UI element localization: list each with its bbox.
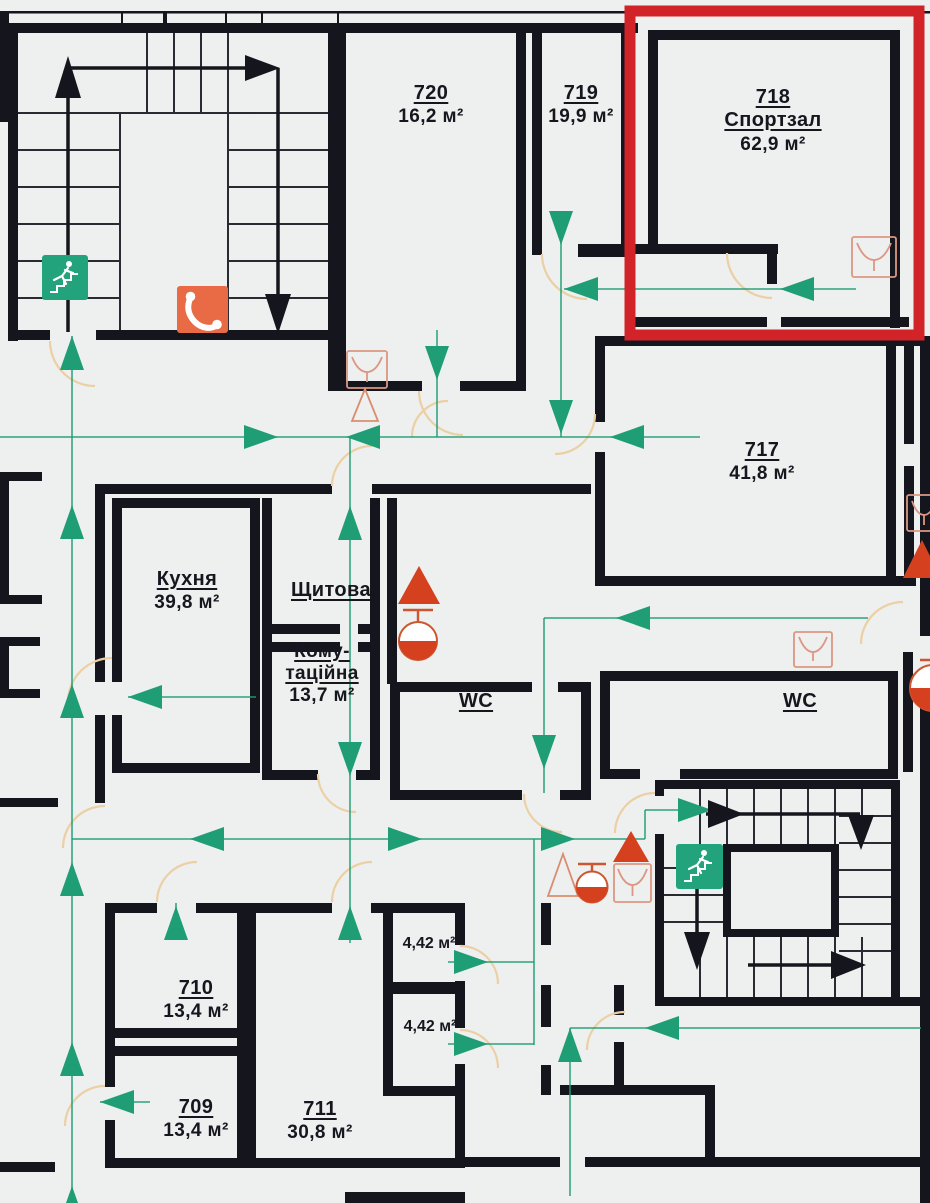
door-leaf-triangle [548, 854, 578, 896]
room-label-710: 710 13,4 м² [163, 977, 228, 1024]
room-label-small-2: 4,42 м² [404, 1018, 457, 1037]
floor-plan-drawing [0, 0, 930, 1203]
fire-extinguisher-icon [398, 566, 440, 604]
stair-direction-arrows [55, 55, 874, 979]
manual-call-point-icon [794, 632, 832, 667]
room-718-highlight-box [630, 11, 919, 335]
evacuation-plan: 720 16,2 м² 719 19,9 м² 718 Спортзал 62,… [0, 0, 930, 1203]
room-label-panel: Щитова [291, 579, 371, 602]
room-label-720: 720 16,2 м² [398, 82, 463, 129]
emergency-phone-sign-icon [177, 286, 228, 333]
fire-hose-reel-icons [399, 610, 930, 903]
room-label-small-1: 4,42 м² [403, 935, 456, 954]
room-label-717: 717 41,8 м² [729, 439, 794, 486]
exit-stairs-sign-icon [676, 844, 723, 889]
door-leaf-triangle [352, 389, 378, 421]
room-label-711: 711 30,8 м² [287, 1098, 352, 1145]
room-label-comm: Кому- таційна 13,7 м² [285, 641, 358, 708]
room-label-wc2: WC [783, 690, 817, 713]
manual-call-point-icon [614, 864, 651, 902]
room-label-718: 718 Спортзал 62,9 м² [724, 86, 821, 156]
fire-hose-reel-icon [399, 610, 437, 660]
fire-extinguisher-icon [613, 831, 649, 862]
fire-hose-reel-icon [577, 864, 608, 903]
room-label-709: 709 13,4 м² [163, 1096, 228, 1143]
room-label-wc1: WC [459, 690, 493, 713]
manual-call-point-icon [852, 237, 896, 277]
room-label-kitchen: Кухня 39,8 м² [154, 568, 219, 615]
walls [0, 12, 930, 1203]
exit-stairs-sign-icon [42, 255, 88, 300]
room-label-719: 719 19,9 м² [548, 82, 613, 129]
